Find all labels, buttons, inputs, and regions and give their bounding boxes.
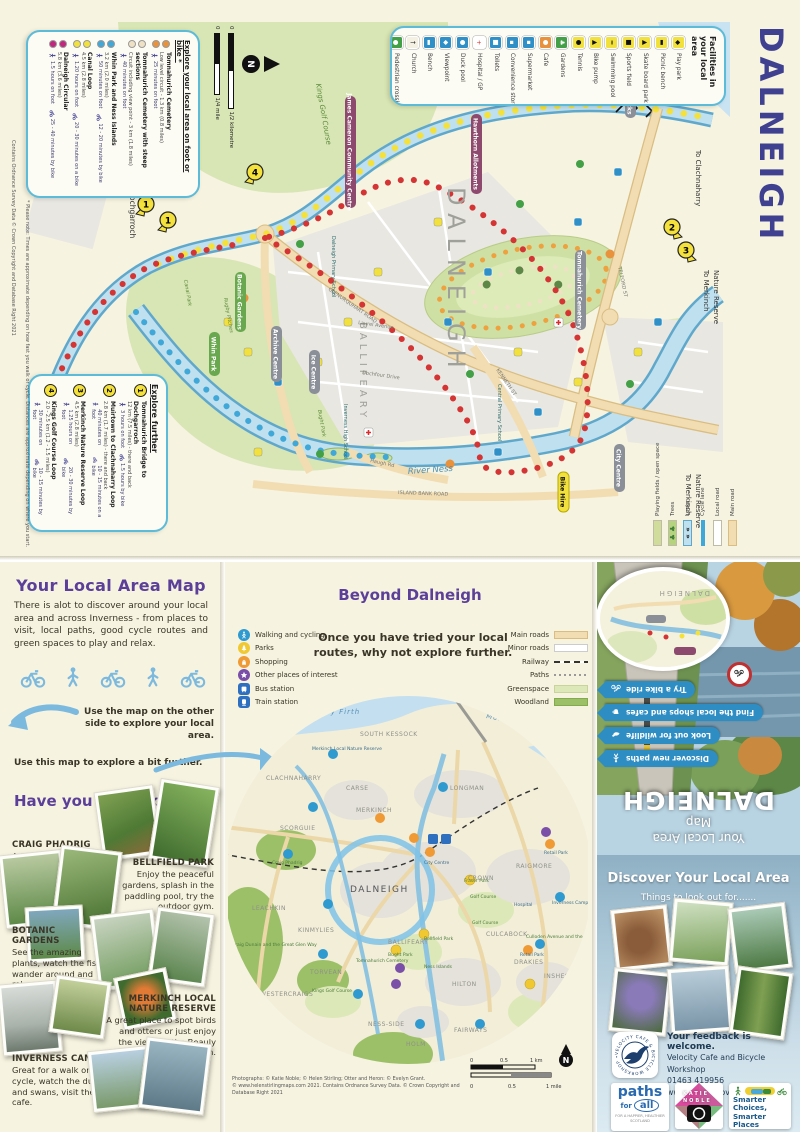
svg-text:KINMYLIES: KINMYLIES [298, 927, 334, 934]
cover-ribbon: Look out for wildlife [605, 727, 720, 744]
svg-text:Archive Centre: Archive Centre [272, 329, 279, 379]
swallow-icon [624, 1046, 649, 1063]
route-bike-time: 20 - 30 minutes on a bike [73, 122, 79, 186]
facility-icon: ■ [489, 36, 502, 49]
route-legend-item: Tomnahurich Cemetery Low level circuit -… [151, 40, 172, 188]
photo-merkinch-otter [48, 974, 112, 1039]
inset-label: DALNEIGH [658, 589, 710, 597]
facility-legend-item: ● Pedestrian crossing [390, 36, 404, 96]
svg-text:N: N [563, 1056, 570, 1065]
facility-icon: ≈ [605, 36, 618, 49]
route-bike-time: 10 - 15 minutes by bike [31, 468, 44, 523]
facility-icon: ● [456, 36, 469, 49]
intro-paragraph: There is alot to discover around your lo… [14, 600, 208, 650]
svg-text:0: 0 [470, 1058, 473, 1064]
legend-icon [238, 642, 250, 654]
route-foot-time: 3 hours on foot [119, 410, 125, 448]
bike-icon [63, 458, 70, 465]
svg-text:City Centre: City Centre [615, 449, 622, 487]
walker-icon [96, 52, 103, 59]
facility-icon: † [406, 36, 419, 49]
svg-text:To Merkinch: To Merkinch [702, 269, 710, 312]
facility-label: Picnic bench [659, 53, 665, 89]
route-foot-time: 1.5 hours on foot [49, 61, 55, 104]
cover-ribbon: Try a bike ride [605, 681, 695, 698]
facility-icon: ● [572, 36, 585, 49]
facility-label: Skate board park [642, 53, 648, 103]
cover-map-word: Map [597, 815, 800, 829]
ribbon-icon [611, 754, 621, 764]
legend-swatch [668, 520, 677, 546]
place-bellfield-park: BELLFIELD PARK Enjoy the peaceful garden… [110, 858, 214, 912]
svg-text:1: 1 [143, 201, 149, 211]
svg-text:NESS-SIDE: NESS-SIDE [368, 1021, 405, 1028]
cycle-sign-icon [727, 662, 752, 687]
svg-text:1 km: 1 km [530, 1058, 543, 1064]
svg-text:MERKINCH: MERKINCH [356, 807, 392, 814]
route-name: Tomnahurich Cemetery with steep sections [133, 52, 148, 188]
beyond-legend-item: Other places of interest [238, 669, 358, 683]
photo-duck [610, 904, 673, 972]
facility-legend-item: ▬ Bench [421, 36, 438, 96]
legend-icon [238, 656, 250, 668]
bike-icon [18, 664, 48, 690]
bike-icon [92, 457, 99, 463]
beyond-legend-item: Paths [488, 669, 588, 683]
route-name: Tomnahurich Cemetery [165, 52, 173, 188]
cover-ribbon: Find the local shops and cafes [605, 704, 763, 721]
route-foot-time: 50 minutes on foot [97, 61, 103, 108]
svg-text:Dalneigh Primary School: Dalneigh Primary School [330, 236, 336, 297]
compass-north-icon: N [559, 1044, 573, 1067]
explore-local-legend: Explore your local area on foot or bike … [26, 30, 200, 198]
facility-label: Bench [426, 53, 432, 71]
route-name: Muirtown to Clachnaharry Loop [108, 401, 116, 522]
route-foot-time: 1.25 hours on foot [60, 410, 73, 453]
walker-icon [119, 401, 126, 408]
facility-legend-item: ▪ Convenience store [504, 36, 521, 96]
svg-text:Botanic Gardens: Botanic Gardens [236, 274, 243, 330]
walker-icon [92, 401, 99, 407]
facility-label: Duck pool [459, 53, 465, 82]
beyond-legend-item: Shopping [238, 655, 358, 669]
legend-swatch [554, 644, 588, 652]
scale-km-label: 1/2 kilometre [228, 112, 234, 149]
photo-irises [608, 967, 672, 1037]
train-station-icon [441, 834, 451, 844]
route-number-badge: 1 [134, 384, 147, 397]
facility-icon: ♣ [555, 36, 568, 49]
route-number-badge: 2 [103, 384, 116, 397]
facility-label: Pedestrian crossing [393, 53, 399, 106]
route-legend-item: Tomnahurich Cemetery with steep sections… [120, 40, 148, 188]
facility-legend-item: ■ Toilets [487, 36, 504, 96]
facility-icon: ◆ [439, 36, 452, 49]
legend-swatch [554, 661, 588, 663]
walker-icon [151, 52, 158, 59]
svg-text:3: 3 [683, 247, 689, 257]
mini-legend-item: Cycle lane [695, 414, 710, 546]
svg-text:Ice Centre: Ice Centre [310, 355, 317, 390]
facility-label: Swimming pool [609, 53, 615, 98]
beyond-legend-item: Walking and cycling [238, 628, 358, 642]
facilities-legend: Facilities in your local area ● Pedestri… [390, 26, 726, 106]
route-foot-time: 30 minutes on foot [31, 409, 44, 453]
walker-icon [49, 52, 56, 59]
svg-text:Fraser Park: Fraser Park [464, 878, 489, 884]
facility-legend-item: ◆ Viewpoint [438, 36, 455, 96]
facility-label: Supermarket [526, 53, 532, 90]
cover-map-inset: DALNEIGH [597, 567, 730, 671]
ribbon-icon [611, 685, 621, 695]
svg-text:Bellfield Park: Bellfield Park [424, 936, 454, 942]
svg-text:LONGMAN: LONGMAN [450, 785, 484, 792]
legend-swatch [728, 520, 737, 546]
route-detail: 5.8 km (3.6 miles) [56, 52, 62, 188]
photo-canal-path [667, 965, 733, 1035]
svg-text:KATIE: KATIE [683, 1091, 709, 1097]
cover-title: DALNEIGH [597, 786, 800, 815]
beauly-firth-label: Beauly Firth [306, 708, 360, 716]
road-graphic [745, 1087, 775, 1095]
walker-icon [120, 52, 127, 59]
svg-text:TORVEAN: TORVEAN [309, 969, 342, 976]
svg-text:Retail Park: Retail Park [544, 850, 568, 856]
facility-legend-item: ◆ Play park [670, 36, 687, 96]
svg-text:SCORGUIE: SCORGUIE [280, 825, 316, 832]
mini-legend-item: Main road [725, 414, 740, 546]
facility-icon: ● [390, 36, 403, 49]
beyond-dalneigh-title: Beyond Dalneigh [240, 586, 580, 604]
svg-text:Nature Reserve: Nature Reserve [712, 270, 720, 324]
facility-legend-item: + Hospital / GP [471, 36, 488, 96]
bike-icon [96, 114, 103, 121]
photo-campus-ducks [138, 1036, 212, 1116]
walker-icon [34, 401, 41, 407]
svg-text:Culloden Avenue and the Gruffa: Culloden Avenue and the Gruffalo walk [526, 934, 588, 940]
explore-local-title: Explore your local area on foot or bike … [175, 40, 191, 188]
mini-legend-item: Locks [680, 414, 695, 546]
map-note: * Please note: Times are approximate dep… [18, 200, 30, 500]
svg-text:HILTON: HILTON [452, 981, 477, 988]
route-color-dots [49, 40, 70, 48]
svg-text:Bught Park: Bught Park [388, 952, 413, 958]
svg-text:To Clachnaharry: To Clachnaharry [694, 149, 702, 206]
route-bike-time: 12 - 20 minutes by bike [97, 123, 103, 182]
map-mini-legend: Playing fields / open space Trees Locks [650, 414, 748, 546]
route-name: Whin Park and Ness Islands [110, 52, 118, 188]
route-color-dots [120, 40, 148, 48]
facility-icon: ■ [622, 36, 635, 49]
svg-text:Hawthorn Allotments: Hawthorn Allotments [472, 118, 479, 190]
facility-label: Church [410, 53, 416, 74]
route-legend-item: 3 Merkinch Nature Reserve Loop 4.5 km (2… [60, 384, 86, 522]
facility-label: Cafe [542, 53, 548, 66]
explore-further-legend: Explore further 1 Tomnahurich Bridge to … [28, 374, 168, 532]
smarter-choices-logo: Smarter Choices, Smarter Places Supporti… [729, 1083, 791, 1129]
svg-text:Golf Course: Golf Course [472, 920, 498, 926]
route-number-badge: 4 [44, 384, 57, 397]
discover-panel: Discover Your Local Area Things to look … [597, 855, 800, 1132]
route-number-badge: 3 [74, 384, 87, 397]
facility-icon: ▲ [589, 36, 602, 49]
svg-text:1 mile: 1 mile [546, 1084, 562, 1090]
route-name: Kings Golf Course Loop [50, 401, 58, 522]
facility-legend-item: ♣ Gardens [554, 36, 571, 96]
route-name: Dalneigh Circular [62, 52, 70, 188]
legend-swatch [713, 520, 722, 546]
svg-text:Tomnahurich Cemetery: Tomnahurich Cemetery [576, 251, 583, 329]
facilities-title: Facilities in your local area [689, 36, 717, 96]
facility-legend-item: ■ Sports field [620, 36, 637, 96]
svg-text:Tomnahurich Cemetery: Tomnahurich Cemetery [355, 958, 409, 964]
facility-icon: ▪ [522, 36, 535, 49]
svg-text:Merkinch Local Nature Reserve: Merkinch Local Nature Reserve [312, 746, 382, 752]
ribbon-icon [611, 708, 621, 718]
svg-text:Craig Dunain and the Great Gle: Craig Dunain and the Great Glen Way [232, 942, 317, 948]
walker-icon [73, 52, 80, 59]
roundabout [602, 309, 618, 325]
route-bike-time: 25 - 40 minutes by bike [49, 119, 55, 178]
explore-further-title: Explore further [150, 384, 159, 522]
dalneigh-label: DALNEIGH [350, 885, 409, 895]
bike-icon [34, 459, 41, 465]
cover-ribbon: Discover new paths [605, 750, 718, 767]
facility-legend-item: ● Tennis [570, 36, 587, 96]
discover-title: Discover Your Local Area [597, 871, 800, 886]
facility-label: Toilets [493, 53, 499, 71]
route-detail: Low level circuit - 1.3 km (0.8 miles) [158, 52, 164, 188]
photo-canal-boats [727, 902, 793, 975]
svg-text:0: 0 [470, 1084, 473, 1090]
svg-text:2: 2 [669, 224, 675, 234]
legend-icon [238, 629, 250, 641]
facility-label: Tennis [576, 53, 582, 71]
vertical-fold [220, 562, 225, 1132]
route-detail: 4.5 km (2.8 miles) [80, 52, 86, 188]
route-foot-time: 40 minutes on foot [90, 409, 103, 451]
route-name: Merkinch Nature Reserve Loop [79, 401, 87, 522]
cover-ribbons: Discover new paths Look out for wildlife… [605, 681, 763, 767]
paths-for-all-logo: paths for all FOR A HAPPIER, HEALTHIER S… [611, 1083, 669, 1131]
facility-label: Bike pump [592, 53, 598, 84]
bike-icon [178, 664, 208, 690]
svg-text:Bike Hire: Bike Hire [559, 477, 566, 508]
photo-craig-phadrig-2 [148, 778, 220, 868]
svg-text:4: 4 [252, 169, 258, 179]
ribbon-icon [611, 731, 621, 741]
bike-icon [777, 1086, 787, 1096]
svg-text:Kings Golf Course: Kings Golf Course [312, 988, 352, 994]
svg-text:HOLM: HOLM [406, 1041, 426, 1048]
route-name: Canal Loop [86, 52, 94, 188]
facility-legend-item: ▲ Skate board park [637, 36, 654, 96]
facility-legend-item: ≈ Swimming pool [603, 36, 620, 96]
route-legend-item: Canal Loop 4.5 km (2.8 miles) 1.20 hours… [73, 40, 94, 188]
district-label: DALNEIGH [442, 187, 470, 376]
bike-icon [49, 110, 56, 117]
beyond-dalneigh-map: SOUTH KESSOCK CLACHNAHARRY CARSE MERKINC… [228, 692, 588, 1072]
activity-icon-row [18, 664, 208, 690]
route-color-dots [96, 40, 117, 48]
route-legend-item: 1 Tomnahurich Bridge to Dochgarroch 12 k… [119, 384, 147, 522]
svg-text:CLACHNAHARRY: CLACHNAHARRY [266, 775, 321, 782]
route-color-dots [73, 40, 94, 48]
leaflet-scan: N DALNEIGH BALLIFEARY River Ness GLENURQ… [0, 0, 800, 1132]
svg-text:Hospital: Hospital [514, 902, 532, 908]
facility-icon: ◆ [672, 36, 685, 49]
cover-kicker: Your Local Area [597, 831, 800, 845]
svg-text:Retail Park: Retail Park [520, 952, 544, 958]
scale-zero: 0 [228, 26, 234, 30]
scale-bar-km [228, 33, 234, 109]
svg-text:WESTERCRAIGS: WESTERCRAIGS [260, 991, 313, 998]
svg-text:Central Primary School: Central Primary School [496, 384, 502, 441]
svg-text:INSHES: INSHES [544, 973, 569, 980]
photo-trees [729, 965, 794, 1040]
facility-label: Sports field [625, 53, 631, 86]
svg-text:CARSE: CARSE [346, 785, 369, 792]
facility-icon: + [473, 36, 486, 49]
legend-swatch [701, 520, 705, 546]
route-bike-time: 10 - 15 minutes on a bike [90, 465, 103, 522]
route-detail: 2.0 - 2.5 km (1.2 - 1.5 miles) [44, 401, 50, 522]
svg-text:LEACHKIN: LEACHKIN [252, 905, 286, 912]
route-foot-time: 40 minutes on foot [120, 61, 126, 108]
legend-swatch [554, 631, 588, 639]
legend-swatch [554, 674, 588, 676]
svg-text:Craig Phadrig: Craig Phadrig [272, 860, 303, 866]
route-bike-time: 1.5 hours by bike [119, 463, 125, 506]
route-color-dots [151, 40, 172, 48]
facility-label: Gardens [559, 53, 565, 77]
bike-icon [73, 113, 80, 120]
facility-icon: ▲ [638, 36, 651, 49]
route-detail: 12 km (7.5 miles) - there and back [126, 401, 132, 522]
svg-text:Golf Course: Golf Course [470, 894, 496, 900]
route-detail: Circuit including view point - 3 km (1.8… [127, 52, 133, 188]
walker-icon [63, 401, 70, 408]
scale-zero: 0 [214, 26, 220, 30]
walker-icon [62, 664, 84, 690]
facility-legend-item: ● Duck pool [454, 36, 471, 96]
facility-legend-item: ● Cafe [537, 36, 554, 96]
leaflet-cover-panel: Your Local Area Map DALNEIGH Discover ne… [597, 562, 800, 855]
legend-swatch [683, 520, 692, 546]
beyond-legend-item: Railway [488, 655, 588, 669]
svg-text:NOBLE: NOBLE [683, 1098, 712, 1104]
beyond-scale-bar: N 0 0.5 1 km 0 0.5 1 mile [462, 1042, 588, 1094]
walker-icon [142, 664, 164, 690]
route-legend-item: Dalneigh Circular 5.8 km (3.6 miles) 1.5… [49, 40, 70, 188]
beyond-legend-item: Parks [238, 642, 358, 656]
facility-icon: ▪ [506, 36, 519, 49]
route-bike-time: 20 - 30 minutes by bike [60, 467, 73, 522]
route-legend-item: 4 Kings Golf Course Loop 2.0 - 2.5 km (1… [31, 384, 57, 522]
facility-icon: ● [539, 36, 552, 49]
facility-legend-item: † Church [404, 36, 421, 96]
svg-text:CULCABOCK: CULCABOCK [486, 931, 528, 938]
mini-legend-item: Playing fields / open space [650, 414, 665, 546]
bike-icon [98, 664, 128, 690]
beyond-legend-item: Main roads [488, 628, 588, 642]
facility-label: Hospital / GP [476, 53, 482, 90]
svg-text:RAIGMORE: RAIGMORE [516, 863, 552, 870]
svg-text:Inverness Campus: Inverness Campus [552, 900, 588, 906]
facility-legend-item: ▲ Bike pump [587, 36, 604, 96]
facility-legend-item: ▬ Picnic bench [653, 36, 670, 96]
scale-mile-label: 1/4 mile [214, 98, 220, 120]
svg-text:FAIRWAYS: FAIRWAYS [454, 1027, 487, 1034]
facility-label: Viewpoint [443, 53, 449, 82]
svg-text:DRAKIES: DRAKIES [514, 959, 543, 966]
page-title: DALNEIGH [752, 26, 790, 246]
svg-text:N: N [245, 60, 255, 68]
svg-text:Whin Park: Whin Park [210, 337, 217, 373]
route-foot-time: 25 minutes on foot [152, 61, 158, 108]
svg-text:0.5: 0.5 [508, 1084, 516, 1090]
route-name: Tomnahurich Bridge to Dochgarroch [132, 401, 147, 522]
local-area-map-title: Your Local Area Map [0, 576, 222, 595]
route-legend-item: Whin Park and Ness Islands 3.2 km (2.0 m… [96, 40, 117, 188]
facility-icon: ▬ [655, 36, 668, 49]
mini-legend-item: Trees [665, 414, 680, 546]
facility-legend-item: ▪ Supermarket [521, 36, 538, 96]
velocity-logo: VELOCITY CAFE & BICYCLE WORKSHOP • [612, 1032, 658, 1078]
svg-text:City Centre: City Centre [424, 860, 450, 866]
map-copyright: Contains Ordnance Survey Data © Crown Co… [4, 140, 16, 420]
beyond-legend-item: Minor roads [488, 642, 588, 656]
svg-text:1: 1 [165, 217, 171, 227]
map-scale: 01/2 kilometre 01/4 mile [194, 26, 238, 166]
legend-swatch [653, 520, 662, 546]
leaflet-title-panel: DALNEIGH [726, 26, 790, 246]
bus-station-icon [428, 834, 438, 844]
katie-noble-logo: KATIE NOBLE [675, 1083, 723, 1129]
facility-label: Play park [675, 53, 681, 80]
facility-icon: ▬ [423, 36, 436, 49]
route-foot-time: 1.20 hours on foot [73, 61, 79, 107]
photo-allotments [668, 898, 733, 967]
scale-bar-mile [214, 33, 220, 95]
route-legend-item: 2 Muirtown to Clachnaharry Loop 2.8 km (… [90, 384, 116, 522]
svg-text:SOUTH KESSOCK: SOUTH KESSOCK [360, 731, 418, 738]
facility-label: Convenience store [509, 53, 515, 106]
svg-text:BALLIFEARY: BALLIFEARY [388, 939, 428, 946]
map-attribution: Photographs: © Katie Noble; © Helen Stir… [232, 1076, 472, 1098]
svg-text:Inverness High School: Inverness High School [342, 404, 348, 459]
svg-text:James Cameron Community Centre: James Cameron Community Centre [346, 92, 353, 211]
svg-text:Ness Islands: Ness Islands [424, 964, 453, 970]
legend-icon [238, 669, 250, 681]
arrow-left-icon [4, 702, 82, 742]
bike-icon [119, 454, 126, 461]
mini-legend-item: Local road [710, 414, 725, 546]
svg-text:0.5: 0.5 [500, 1058, 508, 1064]
